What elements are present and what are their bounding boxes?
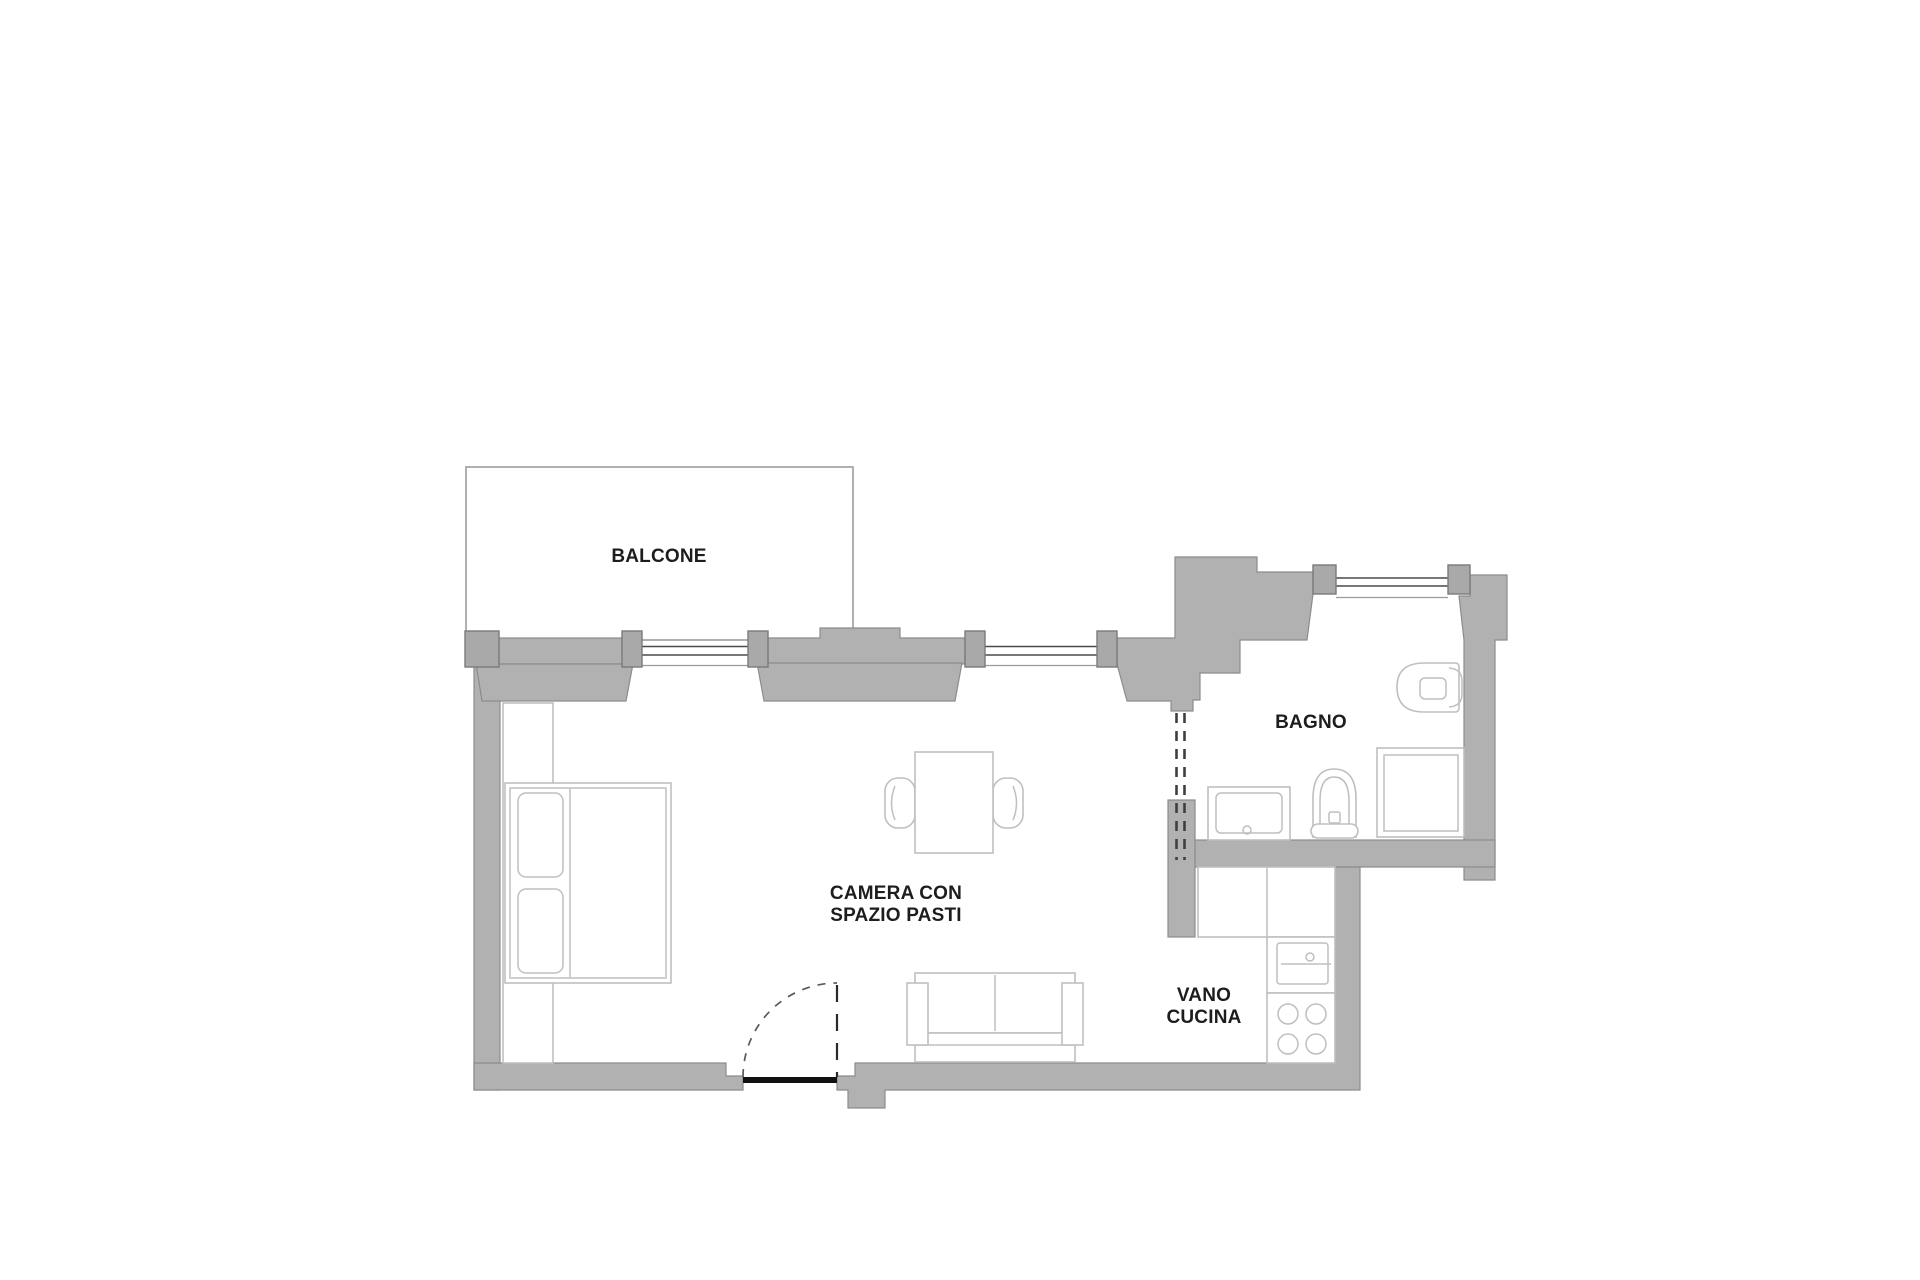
shower	[1377, 748, 1464, 837]
pillar-corner-left	[465, 631, 499, 667]
pillar-window2-left	[965, 631, 985, 667]
left-wall	[474, 660, 500, 1090]
dining-set	[885, 752, 1023, 853]
floor-plan-page: BALCONE CAMERA CON SPAZIO PASTI BAGNO VA…	[0, 0, 1920, 1280]
floor-plan: BALCONE CAMERA CON SPAZIO PASTI BAGNO VA…	[0, 0, 1920, 1280]
bagno-label: BAGNO	[1275, 712, 1347, 733]
bathroom-sink	[1208, 787, 1290, 840]
right-wall	[1459, 575, 1507, 880]
pillar-bath-window-right	[1448, 565, 1470, 594]
double-bed	[505, 783, 671, 983]
top-wall-corbel-1	[476, 664, 633, 701]
bottom-wall-left	[474, 1063, 743, 1090]
balcone-label: BALCONE	[611, 546, 706, 567]
top-wall-corbel-2	[757, 663, 962, 701]
sofa	[907, 973, 1083, 1062]
door-swing-arc	[743, 983, 837, 1077]
dining-table	[915, 752, 993, 853]
top-wall-segment-1	[498, 638, 622, 664]
kitchen-units	[1198, 867, 1335, 1063]
camera-label-line1: CAMERA CON	[830, 883, 962, 904]
toilet	[1397, 663, 1462, 712]
kitchen-partition-wall	[1168, 800, 1195, 937]
entrance-door	[743, 983, 837, 1083]
sofa-arm-right	[1062, 983, 1083, 1045]
window-balcony	[640, 647, 750, 666]
chair-right	[993, 778, 1023, 828]
vano-cucina-label-line2: CUCINA	[1166, 1007, 1241, 1028]
pillar-window1-left	[622, 631, 642, 667]
bathroom-wall-block	[1117, 557, 1313, 711]
door-threshold	[743, 1077, 837, 1083]
chair-left	[885, 778, 915, 828]
window-bathroom	[1336, 578, 1448, 598]
kitchen-sink	[1267, 937, 1335, 993]
pillar-bath-window-left	[1313, 565, 1336, 594]
bidet	[1311, 769, 1358, 838]
camera-label-line2: SPAZIO PASTI	[830, 905, 962, 926]
bathroom-divider-wall	[1195, 840, 1495, 867]
pillar-window2-right	[1097, 631, 1117, 667]
bathroom-fixtures	[1208, 663, 1464, 840]
sofa-arm-left	[907, 983, 928, 1045]
sofa-base	[915, 1033, 1075, 1062]
pillar-window1-right	[748, 631, 768, 667]
vano-cucina-label-line1: VANO	[1177, 985, 1231, 1006]
bedroom-furniture	[503, 703, 1083, 1063]
window-facade	[983, 647, 1099, 666]
cooktop	[1267, 993, 1335, 1063]
